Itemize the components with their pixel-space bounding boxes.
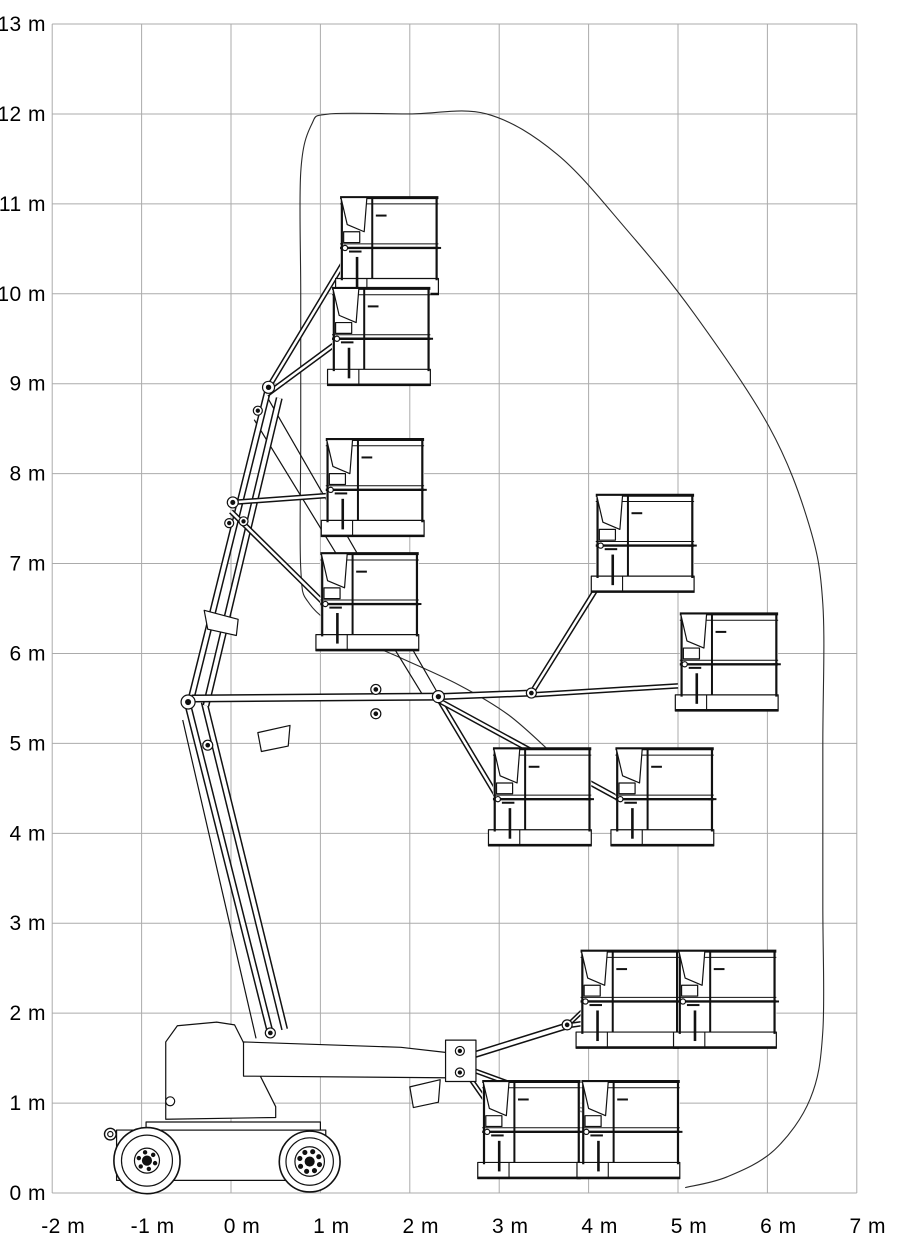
basket-control-box [585, 1116, 601, 1127]
reach-diagram-canvas: -2 m-1 m0 m1 m2 m3 m4 m5 m6 m7 m0 m1 m2 … [0, 0, 900, 1252]
wheel-bolt [147, 1167, 150, 1170]
pivot-pin [231, 500, 235, 504]
boom-arm-core [463, 1026, 567, 1058]
basket-control-box [584, 985, 600, 996]
basket-floor-tray [675, 695, 778, 711]
wheel-bolt [143, 1151, 146, 1154]
x-axis-tick-label: 3 m [492, 1215, 529, 1238]
chassis-deck [146, 1122, 320, 1130]
platform-basket [336, 198, 441, 295]
platform-basket [328, 288, 433, 385]
basket-mech-pin [342, 245, 347, 250]
y-axis-tick-label: 10 m [0, 283, 46, 306]
lower-boom-folded [244, 1042, 457, 1078]
platform-basket [478, 1081, 583, 1178]
platform-basket [576, 951, 681, 1048]
wheel-bolt [318, 1163, 322, 1167]
x-axis-tick-label: 1 m [313, 1215, 350, 1238]
working-range-diagram: -2 m-1 m0 m1 m2 m3 m4 m5 m6 m7 m0 m1 m2 … [0, 0, 900, 1252]
pivot-pin [269, 1031, 273, 1035]
boom-arm-core [531, 580, 602, 693]
pivot-pin [256, 409, 259, 412]
wheel-bolt [139, 1165, 142, 1168]
basket-mech-pin [618, 797, 623, 802]
y-axis-tick-label: 8 m [9, 463, 46, 486]
basket-floor-tray [478, 1162, 581, 1178]
basket-control-box [599, 529, 615, 540]
pivot-pin [186, 700, 191, 705]
y-axis-tick-label: 1 m [9, 1092, 46, 1115]
basket-control-box [683, 648, 699, 659]
pivot-pin [374, 712, 378, 716]
basket-floor-tray [321, 520, 424, 536]
boom-lift-drawing [104, 260, 680, 1194]
platform-basket [488, 749, 593, 846]
basket-mech-pin [598, 543, 603, 548]
basket-control-box [682, 985, 698, 996]
pivot-pin [565, 1023, 569, 1027]
basket-floor-tray [316, 635, 419, 651]
platform-basket [577, 1081, 682, 1178]
leveling-flag [258, 725, 290, 751]
wheel-bolt [311, 1150, 315, 1154]
basket-floor-tray [611, 830, 714, 846]
y-axis-tick-label: 3 m [9, 912, 46, 935]
platform-basket [591, 495, 696, 592]
wheel-bolt [137, 1157, 140, 1160]
basket-mech-pin [583, 999, 588, 1004]
wheel-bolt [305, 1169, 309, 1173]
boom-arm-core [192, 387, 269, 696]
pivot-pin [458, 1071, 461, 1074]
basket-mech-pin [495, 797, 500, 802]
wheel-bolt [303, 1150, 307, 1154]
boom-arm-core [531, 686, 678, 695]
tie-down-ring-inner [108, 1131, 113, 1136]
basket-floor-tray [577, 1162, 680, 1178]
pivot-pin [228, 522, 231, 525]
pivot-pin [242, 520, 245, 523]
platform-basket [316, 554, 421, 651]
basket-mech-pin [328, 487, 333, 492]
y-axis-tick-label: 7 m [9, 553, 46, 576]
basket-floor-tray [674, 1032, 777, 1048]
boom-arm-core [192, 697, 439, 699]
wheel-bolt [298, 1157, 302, 1161]
x-axis-tick-label: 4 m [581, 1215, 618, 1238]
basket-control-box [497, 783, 513, 794]
platform-basket [675, 614, 780, 711]
basket-floor-tray [488, 830, 591, 846]
wheel-bolt [152, 1153, 155, 1156]
basket-mech-pin [323, 601, 328, 606]
boom-arm-core [188, 706, 270, 1033]
wheel-bolt [317, 1155, 321, 1159]
x-axis-tick-label: 0 m [224, 1215, 261, 1238]
platform-basket [674, 951, 779, 1048]
x-axis-tick-label: -2 m [41, 1215, 85, 1238]
x-axis-tick-label: 2 m [403, 1215, 440, 1238]
x-axis-tick-label: -1 m [131, 1215, 175, 1238]
y-axis-tick-label: 2 m [9, 1002, 46, 1025]
basket-mech-pin [680, 999, 685, 1004]
basket-control-box [486, 1116, 502, 1127]
y-axis-tick-label: 0 m [9, 1182, 46, 1205]
wheel-hub [305, 1157, 314, 1166]
pivot-pin [374, 688, 378, 692]
basket-floor-tray [576, 1032, 679, 1048]
y-axis-tick-label: 5 m [9, 732, 46, 755]
basket-control-box [336, 323, 352, 334]
platform-basket [321, 439, 426, 536]
pivot-pin [436, 695, 440, 699]
y-axis-tick-label: 13 m [0, 13, 46, 36]
wheel-bolt [299, 1164, 303, 1168]
pivot-pin [458, 1049, 461, 1052]
basket-mech-pin [584, 1129, 589, 1134]
wheel-bolt [153, 1162, 156, 1165]
wheel-hub [142, 1156, 151, 1165]
basket-floor-tray [591, 576, 694, 592]
pivot-pin [530, 691, 534, 695]
basket-control-box [619, 783, 635, 794]
basket-mech-pin [682, 662, 687, 667]
x-axis-tick-label: 6 m [760, 1215, 797, 1238]
y-axis-tick-label: 4 m [9, 822, 46, 845]
x-axis-tick-label: 5 m [671, 1215, 708, 1238]
x-axis-tick-label: 7 m [850, 1215, 887, 1238]
basket-mech-pin [485, 1129, 490, 1134]
y-axis-tick-label: 6 m [9, 642, 46, 665]
basket-mech-pin [334, 336, 339, 341]
wheel-bolt [313, 1169, 317, 1173]
y-axis-tick-label: 9 m [9, 373, 46, 396]
basket-control-box [344, 232, 360, 243]
platform-basket [611, 749, 716, 846]
y-axis-tick-label: 12 m [0, 103, 46, 126]
turret-fitting [166, 1097, 175, 1106]
basket-control-box [329, 474, 345, 485]
basket-control-box [324, 588, 340, 599]
pivot-pin [266, 385, 270, 389]
pivot-pin [206, 743, 210, 747]
y-axis-tick-label: 11 m [0, 193, 46, 216]
basket-floor-tray [328, 369, 431, 385]
